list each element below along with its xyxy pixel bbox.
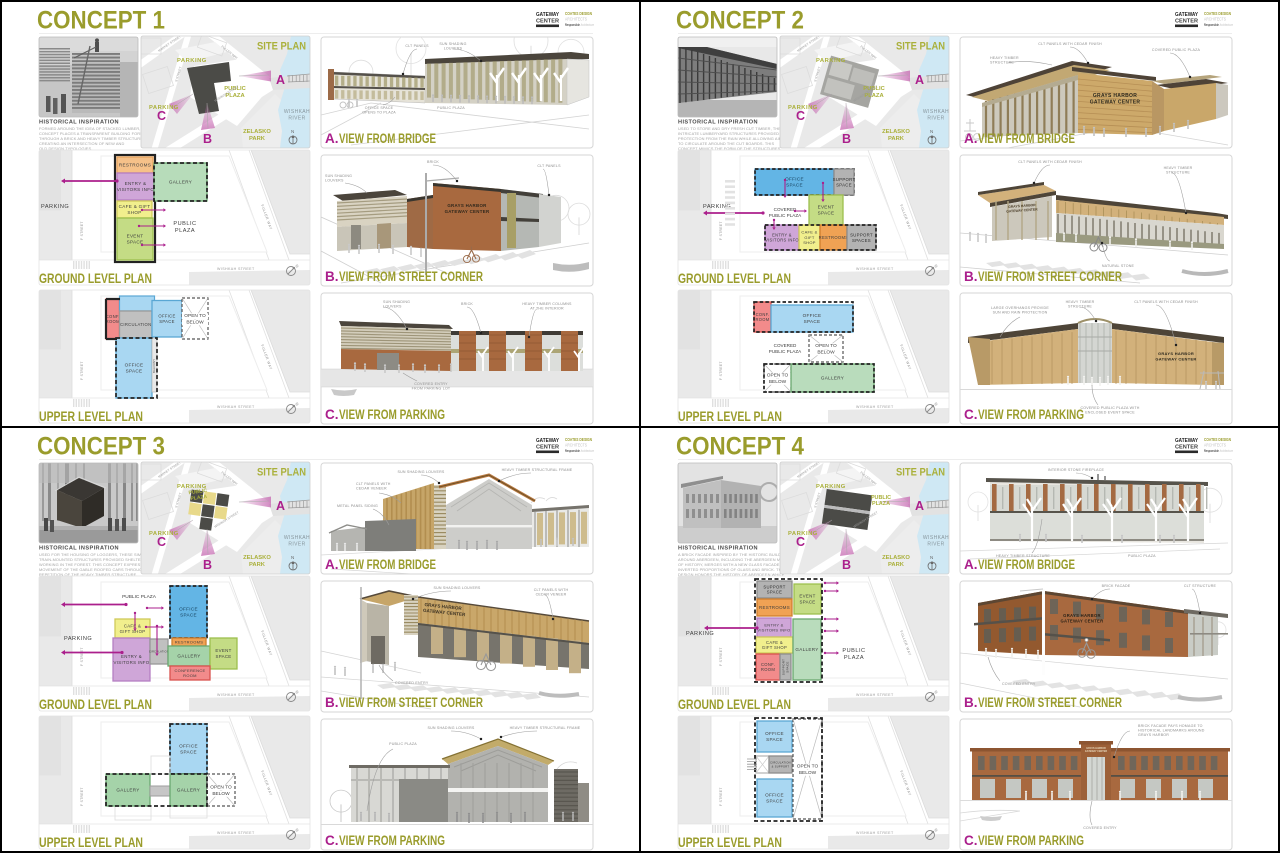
svg-text:A.: A. bbox=[964, 131, 978, 146]
svg-text:CONF.: CONF. bbox=[756, 312, 770, 317]
svg-text:CONCEPT 2: CONCEPT 2 bbox=[676, 7, 804, 35]
svg-text:VIEW FROM PARKING: VIEW FROM PARKING bbox=[978, 407, 1084, 422]
svg-text:A.: A. bbox=[325, 557, 339, 572]
svg-text:ENTRY &: ENTRY & bbox=[772, 232, 792, 237]
svg-text:B: B bbox=[842, 558, 851, 572]
svg-text:HEAVY TIMBER STRUCTURAL FRAME: HEAVY TIMBER STRUCTURAL FRAME bbox=[502, 468, 573, 472]
svg-text:CLT STRUCTURE: CLT STRUCTURE bbox=[1184, 584, 1217, 588]
svg-text:VIEW FROM STREET CORNER: VIEW FROM STREET CORNER bbox=[339, 269, 483, 284]
svg-text:HEAVY TIMBER STRUCTURAL FRAME: HEAVY TIMBER STRUCTURAL FRAME bbox=[510, 726, 581, 730]
svg-text:COVERED PUBLIC PLAZA WITH: COVERED PUBLIC PLAZA WITH bbox=[1080, 406, 1139, 410]
svg-text:CLT PANELS WITH CEDAR FINISH: CLT PANELS WITH CEDAR FINISH bbox=[1134, 300, 1198, 304]
svg-text:UPPER LEVEL PLAN: UPPER LEVEL PLAN bbox=[39, 835, 143, 850]
svg-text:SUPPORT: SUPPORT bbox=[763, 584, 785, 589]
svg-text:SUN SHADING: SUN SHADING bbox=[383, 300, 410, 304]
svg-text:STRUCTURE: STRUCTURE bbox=[1068, 305, 1092, 309]
svg-text:EVENT: EVENT bbox=[127, 234, 144, 239]
svg-text:RESTROOMS: RESTROOMS bbox=[759, 605, 790, 610]
svg-text:RESTROOMS: RESTROOMS bbox=[175, 639, 204, 644]
svg-text:HISTORICAL INSPIRATION: HISTORICAL INSPIRATION bbox=[39, 546, 119, 552]
svg-text:N: N bbox=[930, 555, 933, 560]
svg-text:LARGE OVERHANGS PROVIDE: LARGE OVERHANGS PROVIDE bbox=[991, 306, 1049, 310]
svg-text:B: B bbox=[203, 132, 212, 146]
svg-text:SPACE: SPACE bbox=[127, 240, 144, 245]
svg-text:COATES DESIGN: COATES DESIGN bbox=[1204, 11, 1231, 16]
svg-text:ZELASKO: ZELASKO bbox=[243, 129, 271, 135]
svg-text:NATURAL STONE: NATURAL STONE bbox=[1102, 264, 1135, 268]
svg-text:SPACE: SPACE bbox=[766, 799, 783, 804]
svg-text:C.: C. bbox=[964, 407, 978, 422]
svg-text:VIEW FROM PARKING: VIEW FROM PARKING bbox=[978, 833, 1084, 848]
svg-text:RIVER: RIVER bbox=[288, 116, 305, 122]
svg-text:B.: B. bbox=[325, 695, 339, 710]
svg-text:SUN AND RAIN PROTECTION: SUN AND RAIN PROTECTION bbox=[993, 311, 1048, 315]
svg-text:EVENT: EVENT bbox=[799, 594, 815, 599]
svg-text:F STREET: F STREET bbox=[80, 361, 84, 380]
svg-text:OFFICE: OFFICE bbox=[179, 744, 198, 749]
svg-text:COVERED ENTRY: COVERED ENTRY bbox=[1083, 826, 1117, 830]
svg-text:AT THE INTERIOR: AT THE INTERIOR bbox=[530, 307, 564, 311]
svg-text:VISITORS INFO: VISITORS INFO bbox=[757, 628, 790, 633]
svg-text:ROOM: ROOM bbox=[183, 673, 197, 678]
svg-text:WISHKAH STREET: WISHKAH STREET bbox=[217, 831, 255, 835]
svg-text:F STREET: F STREET bbox=[719, 221, 723, 240]
svg-text:PARK: PARK bbox=[888, 562, 905, 568]
svg-text:CEDAR VENEER: CEDAR VENEER bbox=[356, 487, 387, 491]
svg-text:EVENT: EVENT bbox=[818, 205, 835, 210]
svg-text:& SUPPORT: & SUPPORT bbox=[772, 764, 790, 768]
svg-text:SPACE: SPACE bbox=[799, 599, 815, 604]
svg-text:SITE PLAN: SITE PLAN bbox=[896, 41, 945, 53]
svg-text:WISHKAH STREET: WISHKAH STREET bbox=[217, 267, 255, 271]
svg-text:SPACE: SPACE bbox=[786, 183, 803, 188]
svg-text:COVERED ENTRY: COVERED ENTRY bbox=[395, 681, 429, 685]
svg-text:PLAZA: PLAZA bbox=[844, 655, 864, 661]
svg-text:GALLERY: GALLERY bbox=[169, 180, 192, 185]
svg-text:F STREET: F STREET bbox=[80, 647, 84, 666]
svg-text:HISTORICAL INSPIRATION: HISTORICAL INSPIRATION bbox=[678, 546, 758, 552]
svg-text:BELOW: BELOW bbox=[212, 791, 230, 797]
svg-text:HEAVY TIMBER: HEAVY TIMBER bbox=[1066, 300, 1095, 304]
svg-text:B.: B. bbox=[964, 269, 978, 284]
svg-text:WISHKAH STREET: WISHKAH STREET bbox=[856, 405, 894, 409]
svg-text:Responsible Architecture: Responsible Architecture bbox=[1204, 23, 1233, 27]
svg-text:CLT PANELS: CLT PANELS bbox=[537, 164, 561, 168]
svg-text:COATES DESIGN: COATES DESIGN bbox=[565, 437, 592, 442]
svg-text:SPACE: SPACE bbox=[818, 211, 835, 216]
svg-text:PARKING: PARKING bbox=[816, 58, 846, 64]
svg-text:WISHKAH STREET: WISHKAH STREET bbox=[856, 693, 894, 697]
svg-text:GRAYS HARBOR: GRAYS HARBOR bbox=[1138, 733, 1169, 737]
svg-text:COATES DESIGN: COATES DESIGN bbox=[1204, 437, 1231, 442]
svg-text:SITE PLAN: SITE PLAN bbox=[257, 467, 306, 479]
svg-text:GRAYS HARBOR: GRAYS HARBOR bbox=[1093, 93, 1137, 99]
svg-text:PARKING: PARKING bbox=[149, 531, 179, 537]
svg-text:COVERED: COVERED bbox=[774, 343, 797, 348]
svg-text:OFFICE: OFFICE bbox=[158, 314, 175, 319]
svg-text:WISHKAH: WISHKAH bbox=[284, 109, 310, 115]
svg-text:CLT PANELS WITH CEDAR FINISH: CLT PANELS WITH CEDAR FINISH bbox=[1018, 160, 1082, 164]
svg-text:METAL PANEL SIDING: METAL PANEL SIDING bbox=[337, 504, 378, 508]
svg-text:UPPER LEVEL PLAN: UPPER LEVEL PLAN bbox=[39, 409, 143, 424]
svg-text:CLT PANELS: CLT PANELS bbox=[405, 44, 429, 48]
svg-text:GIFT SHOP: GIFT SHOP bbox=[762, 645, 787, 650]
svg-text:WISHKAH: WISHKAH bbox=[923, 109, 949, 115]
svg-text:VIEW FROM BRIDGE: VIEW FROM BRIDGE bbox=[978, 131, 1075, 146]
svg-text:UPPER LEVEL PLAN: UPPER LEVEL PLAN bbox=[678, 409, 782, 424]
svg-text:F STREET: F STREET bbox=[80, 787, 84, 806]
svg-text:A: A bbox=[915, 499, 924, 513]
svg-text:RIVER: RIVER bbox=[288, 542, 305, 548]
svg-text:RIVER: RIVER bbox=[927, 116, 944, 122]
svg-text:F STREET: F STREET bbox=[719, 647, 723, 666]
svg-text:CAFE &: CAFE & bbox=[124, 623, 141, 628]
svg-text:C: C bbox=[157, 109, 166, 123]
svg-text:CIRCULATION: CIRCULATION bbox=[770, 761, 791, 765]
svg-text:SPACES: SPACES bbox=[852, 238, 871, 243]
svg-text:OFFICE: OFFICE bbox=[125, 363, 144, 368]
svg-text:ROOM: ROOM bbox=[106, 319, 120, 324]
svg-text:BELOW: BELOW bbox=[769, 379, 787, 385]
svg-text:VIEW FROM STREET CORNER: VIEW FROM STREET CORNER bbox=[339, 695, 483, 710]
svg-text:RIVER: RIVER bbox=[927, 542, 944, 548]
svg-text:CEDAR VENEER: CEDAR VENEER bbox=[536, 593, 567, 597]
svg-text:CENTER: CENTER bbox=[536, 445, 560, 451]
svg-text:ZELASKO: ZELASKO bbox=[882, 555, 910, 561]
svg-text:UPPER LEVEL PLAN: UPPER LEVEL PLAN bbox=[678, 835, 782, 850]
svg-text:GROUND LEVEL PLAN: GROUND LEVEL PLAN bbox=[39, 697, 152, 712]
svg-text:GRAYS HARBOR: GRAYS HARBOR bbox=[1063, 613, 1101, 618]
svg-text:RESTROOMS: RESTROOMS bbox=[119, 163, 151, 168]
svg-text:PUBLIC PLAZA: PUBLIC PLAZA bbox=[389, 742, 417, 746]
svg-text:GRAYS HARBOR: GRAYS HARBOR bbox=[1158, 351, 1194, 356]
svg-text:WISHKAH STREET: WISHKAH STREET bbox=[856, 267, 894, 271]
svg-text:LOUVERS: LOUVERS bbox=[383, 305, 402, 309]
svg-text:OPEN TO: OPEN TO bbox=[184, 313, 206, 319]
svg-text:OPEN TO: OPEN TO bbox=[210, 785, 232, 791]
svg-text:C: C bbox=[157, 535, 166, 549]
svg-text:A: A bbox=[915, 73, 924, 87]
svg-text:PLAZA: PLAZA bbox=[872, 501, 890, 507]
svg-text:OPENS TO PLAZA: OPENS TO PLAZA bbox=[362, 111, 396, 115]
svg-text:SUN SHADING LOUVERS: SUN SHADING LOUVERS bbox=[428, 726, 475, 730]
svg-text:ENCLOSED EVENT SPACE: ENCLOSED EVENT SPACE bbox=[1085, 411, 1135, 415]
svg-text:C: C bbox=[796, 535, 805, 549]
svg-text:INTERIOR STONE FIREPLACE: INTERIOR STONE FIREPLACE bbox=[1048, 468, 1105, 472]
svg-text:VIEW FROM BRIDGE: VIEW FROM BRIDGE bbox=[339, 131, 436, 146]
svg-text:ZELASKO: ZELASKO bbox=[882, 129, 910, 135]
svg-text:WISHKAH: WISHKAH bbox=[923, 535, 949, 541]
svg-text:COATES DESIGN: COATES DESIGN bbox=[565, 11, 592, 16]
svg-text:PUBLIC PLAZA: PUBLIC PLAZA bbox=[769, 349, 802, 354]
svg-text:GALLERY: GALLERY bbox=[177, 788, 200, 793]
svg-text:A: A bbox=[276, 499, 285, 513]
svg-text:HEAVY TIMBER COLUMNS: HEAVY TIMBER COLUMNS bbox=[522, 302, 572, 306]
svg-text:ENTRY &: ENTRY & bbox=[121, 654, 142, 659]
svg-text:ENTRY &: ENTRY & bbox=[125, 181, 147, 186]
svg-text:OFFICE: OFFICE bbox=[765, 731, 784, 736]
svg-text:OFFICE SPACE: OFFICE SPACE bbox=[365, 106, 394, 110]
svg-text:CENTER: CENTER bbox=[536, 19, 560, 25]
svg-text:GATEWAY CENTER: GATEWAY CENTER bbox=[445, 209, 490, 214]
svg-text:A: A bbox=[276, 73, 285, 87]
svg-text:COVERED PUBLIC PLAZA: COVERED PUBLIC PLAZA bbox=[1152, 48, 1201, 52]
svg-text:CAFE &: CAFE & bbox=[766, 640, 783, 645]
svg-text:PUBLIC PLAZA: PUBLIC PLAZA bbox=[437, 106, 465, 110]
svg-text:ROOM: ROOM bbox=[761, 667, 775, 672]
svg-text:SUN SHADING: SUN SHADING bbox=[439, 42, 466, 46]
svg-text:PARKING: PARKING bbox=[788, 105, 818, 111]
svg-text:SUN SHADING: SUN SHADING bbox=[325, 174, 352, 178]
svg-text:CONCEPT 1: CONCEPT 1 bbox=[37, 7, 165, 35]
svg-text:B: B bbox=[842, 132, 851, 146]
svg-text:GROUND LEVEL PLAN: GROUND LEVEL PLAN bbox=[678, 271, 791, 286]
svg-text:GATEWAY: GATEWAY bbox=[536, 438, 559, 444]
svg-text:VISITORS INFO: VISITORS INFO bbox=[117, 187, 155, 192]
svg-text:SHOP: SHOP bbox=[127, 210, 141, 215]
svg-text:BELOW: BELOW bbox=[817, 349, 835, 355]
svg-text:PLAZA: PLAZA bbox=[175, 228, 195, 234]
svg-text:OPEN TO: OPEN TO bbox=[767, 373, 789, 379]
svg-text:GALLERY: GALLERY bbox=[821, 376, 844, 381]
svg-text:Responsible Architecture: Responsible Architecture bbox=[1204, 449, 1233, 453]
svg-text:PARK: PARK bbox=[249, 562, 266, 568]
svg-text:BRICK: BRICK bbox=[461, 302, 473, 306]
svg-text:F STREET: F STREET bbox=[719, 361, 723, 380]
svg-text:HISTORICAL INSPIRATION: HISTORICAL INSPIRATION bbox=[39, 120, 119, 126]
svg-text:PARKING: PARKING bbox=[64, 636, 92, 642]
svg-text:BRICK FACADE PAYS HOMAGE TO: BRICK FACADE PAYS HOMAGE TO bbox=[1138, 724, 1203, 728]
svg-text:VISITORS INFO: VISITORS INFO bbox=[113, 660, 149, 665]
svg-text:PUBLIC PLAZA: PUBLIC PLAZA bbox=[1128, 554, 1156, 558]
svg-text:WISHKAH STREET: WISHKAH STREET bbox=[856, 831, 894, 835]
svg-text:SPACE: SPACE bbox=[804, 319, 821, 324]
svg-text:C: C bbox=[796, 109, 805, 123]
svg-text:C.: C. bbox=[325, 407, 339, 422]
svg-text:CIRCULATION: CIRCULATION bbox=[120, 322, 151, 327]
svg-text:A.: A. bbox=[964, 557, 978, 572]
svg-text:ARCHITECTS: ARCHITECTS bbox=[1204, 443, 1226, 448]
svg-text:C.: C. bbox=[964, 833, 978, 848]
svg-text:LOUVERS: LOUVERS bbox=[325, 179, 344, 183]
svg-text:RESTROOMS: RESTROOMS bbox=[819, 235, 849, 240]
svg-text:SPACE: SPACE bbox=[159, 319, 174, 324]
svg-text:F STREET: F STREET bbox=[80, 221, 84, 240]
svg-text:CENTER: CENTER bbox=[1175, 445, 1199, 451]
svg-text:BRICK FACADE: BRICK FACADE bbox=[1102, 584, 1131, 588]
svg-text:SITE PLAN: SITE PLAN bbox=[896, 467, 945, 479]
svg-text:PUBLIC: PUBLIC bbox=[173, 221, 196, 227]
svg-text:VIEW FROM BRIDGE: VIEW FROM BRIDGE bbox=[978, 557, 1075, 572]
svg-text:GATEWAY: GATEWAY bbox=[1175, 12, 1198, 18]
svg-text:PUBLIC PLAZA: PUBLIC PLAZA bbox=[769, 213, 802, 218]
svg-text:ARCHITECTS: ARCHITECTS bbox=[1204, 17, 1226, 22]
svg-text:SUN SHADING LOUVERS: SUN SHADING LOUVERS bbox=[398, 470, 445, 474]
svg-text:Responsible Architecture: Responsible Architecture bbox=[565, 449, 594, 453]
svg-text:CLT PANELS WITH CEDAR FINISH: CLT PANELS WITH CEDAR FINISH bbox=[1038, 42, 1102, 46]
svg-text:SHOP: SHOP bbox=[803, 240, 816, 245]
svg-text:GATEWAY CENTER: GATEWAY CENTER bbox=[1061, 619, 1104, 624]
svg-text:SUPPORT: SUPPORT bbox=[850, 232, 873, 237]
svg-text:BRICK: BRICK bbox=[427, 160, 439, 164]
svg-text:COVERED: COVERED bbox=[774, 207, 797, 212]
svg-text:SUN SHADING LOUVERS: SUN SHADING LOUVERS bbox=[434, 586, 481, 590]
svg-text:VIEW FROM STREET CORNER: VIEW FROM STREET CORNER bbox=[978, 695, 1122, 710]
svg-text:VIEW FROM BRIDGE: VIEW FROM BRIDGE bbox=[339, 557, 436, 572]
svg-text:PARK: PARK bbox=[888, 136, 905, 142]
svg-text:BELOW: BELOW bbox=[186, 319, 204, 325]
svg-text:BALCONY: BALCONY bbox=[152, 359, 156, 373]
svg-text:GATEWAY CENTER: GATEWAY CENTER bbox=[1155, 357, 1196, 362]
svg-text:B.: B. bbox=[964, 695, 978, 710]
svg-text:ROOM: ROOM bbox=[756, 317, 770, 322]
svg-text:GRAYS HARBOR: GRAYS HARBOR bbox=[447, 203, 487, 208]
svg-text:B: B bbox=[203, 558, 212, 572]
svg-text:COVERED ENTRY: COVERED ENTRY bbox=[1002, 682, 1036, 686]
svg-text:B.: B. bbox=[325, 269, 339, 284]
svg-text:GATEWAY CENTER: GATEWAY CENTER bbox=[1085, 750, 1107, 753]
svg-text:CONF.: CONF. bbox=[761, 662, 775, 667]
svg-text:ARCHITECTS: ARCHITECTS bbox=[565, 443, 587, 448]
svg-text:GATEWAY: GATEWAY bbox=[1175, 438, 1198, 444]
svg-text:VIEW FROM STREET CORNER: VIEW FROM STREET CORNER bbox=[978, 269, 1122, 284]
svg-text:N: N bbox=[930, 129, 933, 134]
svg-text:PARK: PARK bbox=[249, 136, 266, 142]
svg-text:OFFICE: OFFICE bbox=[765, 793, 784, 798]
svg-text:HEAVY TIMBER: HEAVY TIMBER bbox=[990, 56, 1019, 60]
svg-text:PARKING: PARKING bbox=[177, 58, 207, 64]
svg-text:GROUND LEVEL PLAN: GROUND LEVEL PLAN bbox=[39, 271, 152, 286]
svg-text:GALLERY: GALLERY bbox=[116, 788, 139, 793]
svg-text:LOUVERS: LOUVERS bbox=[444, 47, 463, 51]
svg-text:HEAVY TIMBER: HEAVY TIMBER bbox=[1164, 166, 1193, 170]
svg-text:Responsible Architecture: Responsible Architecture bbox=[565, 23, 594, 27]
svg-text:PARKING: PARKING bbox=[816, 484, 846, 490]
svg-text:PARKING: PARKING bbox=[41, 204, 69, 210]
svg-text:CENTER: CENTER bbox=[1175, 19, 1199, 25]
svg-text:EVENT: EVENT bbox=[215, 648, 231, 653]
svg-text:SPACE: SPACE bbox=[215, 654, 231, 659]
svg-text:VIEW FROM PARKING: VIEW FROM PARKING bbox=[339, 407, 445, 422]
svg-text:VIEW FROM PARKING: VIEW FROM PARKING bbox=[339, 833, 445, 848]
svg-text:SPACE: SPACE bbox=[180, 613, 197, 618]
svg-text:PARKING: PARKING bbox=[788, 531, 818, 537]
svg-text:CLT PANELS WITH: CLT PANELS WITH bbox=[356, 482, 391, 486]
svg-text:SPACE: SPACE bbox=[180, 750, 197, 755]
svg-text:GIFT SHOP: GIFT SHOP bbox=[120, 629, 146, 634]
svg-text:WISHKAH: WISHKAH bbox=[284, 535, 310, 541]
svg-text:OFFICE: OFFICE bbox=[803, 313, 822, 318]
svg-text:WISHKAH STREET: WISHKAH STREET bbox=[217, 405, 255, 409]
svg-text:GALLERY: GALLERY bbox=[795, 647, 818, 652]
svg-text:F STREET: F STREET bbox=[719, 787, 723, 806]
svg-text:GATEWAY: GATEWAY bbox=[536, 12, 559, 18]
svg-text:N: N bbox=[291, 555, 294, 560]
svg-text:SPACE: SPACE bbox=[836, 182, 852, 187]
svg-text:CAFE & GIFT: CAFE & GIFT bbox=[119, 204, 151, 209]
svg-text:ARCHITECTS: ARCHITECTS bbox=[565, 17, 587, 22]
svg-text:CONF.: CONF. bbox=[106, 314, 120, 319]
svg-text:PUBLIC PLAZA: PUBLIC PLAZA bbox=[122, 594, 157, 600]
svg-text:ZELASKO: ZELASKO bbox=[243, 555, 271, 561]
svg-text:STRUCTURE: STRUCTURE bbox=[1166, 171, 1190, 175]
svg-text:GATEWAY CENTER: GATEWAY CENTER bbox=[1090, 100, 1141, 106]
svg-text:SPACE: SPACE bbox=[766, 737, 783, 742]
svg-text:HISTORICAL INSPIRATION: HISTORICAL INSPIRATION bbox=[678, 120, 758, 126]
svg-text:CLT PANELS WITH: CLT PANELS WITH bbox=[534, 588, 569, 592]
svg-text:GALLERY: GALLERY bbox=[177, 654, 200, 659]
svg-text:PARKING: PARKING bbox=[149, 105, 179, 111]
svg-text:CONCEPT 3: CONCEPT 3 bbox=[37, 433, 165, 461]
svg-text:PARKING: PARKING bbox=[686, 631, 714, 637]
svg-text:WISHKAH STREET: WISHKAH STREET bbox=[217, 693, 255, 697]
svg-text:OFFICE: OFFICE bbox=[785, 177, 804, 182]
svg-text:SUPPORT: SUPPORT bbox=[833, 177, 856, 182]
svg-text:SITE PLAN: SITE PLAN bbox=[257, 41, 306, 53]
svg-text:HISTORICAL LANDMARKS AROUND: HISTORICAL LANDMARKS AROUND bbox=[1138, 729, 1205, 733]
svg-text:VISITORS INFO: VISITORS INFO bbox=[765, 238, 799, 243]
svg-text:SPACE: SPACE bbox=[786, 661, 790, 672]
svg-text:SPACE: SPACE bbox=[767, 590, 782, 595]
svg-text:PUBLIC: PUBLIC bbox=[842, 648, 865, 654]
svg-text:C.: C. bbox=[325, 833, 339, 848]
svg-text:COVERED ENTRY: COVERED ENTRY bbox=[414, 382, 448, 386]
svg-text:OPEN TO: OPEN TO bbox=[797, 764, 819, 770]
svg-text:CONCEPT 4: CONCEPT 4 bbox=[676, 433, 804, 461]
svg-text:BELOW: BELOW bbox=[799, 770, 817, 776]
svg-text:FROM PARKING LOT: FROM PARKING LOT bbox=[412, 387, 451, 391]
svg-text:GROUND LEVEL PLAN: GROUND LEVEL PLAN bbox=[678, 697, 791, 712]
svg-text:N: N bbox=[291, 129, 294, 134]
svg-text:OPEN TO: OPEN TO bbox=[815, 343, 837, 349]
svg-text:SPACE: SPACE bbox=[126, 369, 143, 374]
svg-text:OFFICE: OFFICE bbox=[179, 607, 198, 612]
svg-text:CIRCULATION: CIRCULATION bbox=[149, 650, 169, 653]
svg-text:A.: A. bbox=[325, 131, 339, 146]
